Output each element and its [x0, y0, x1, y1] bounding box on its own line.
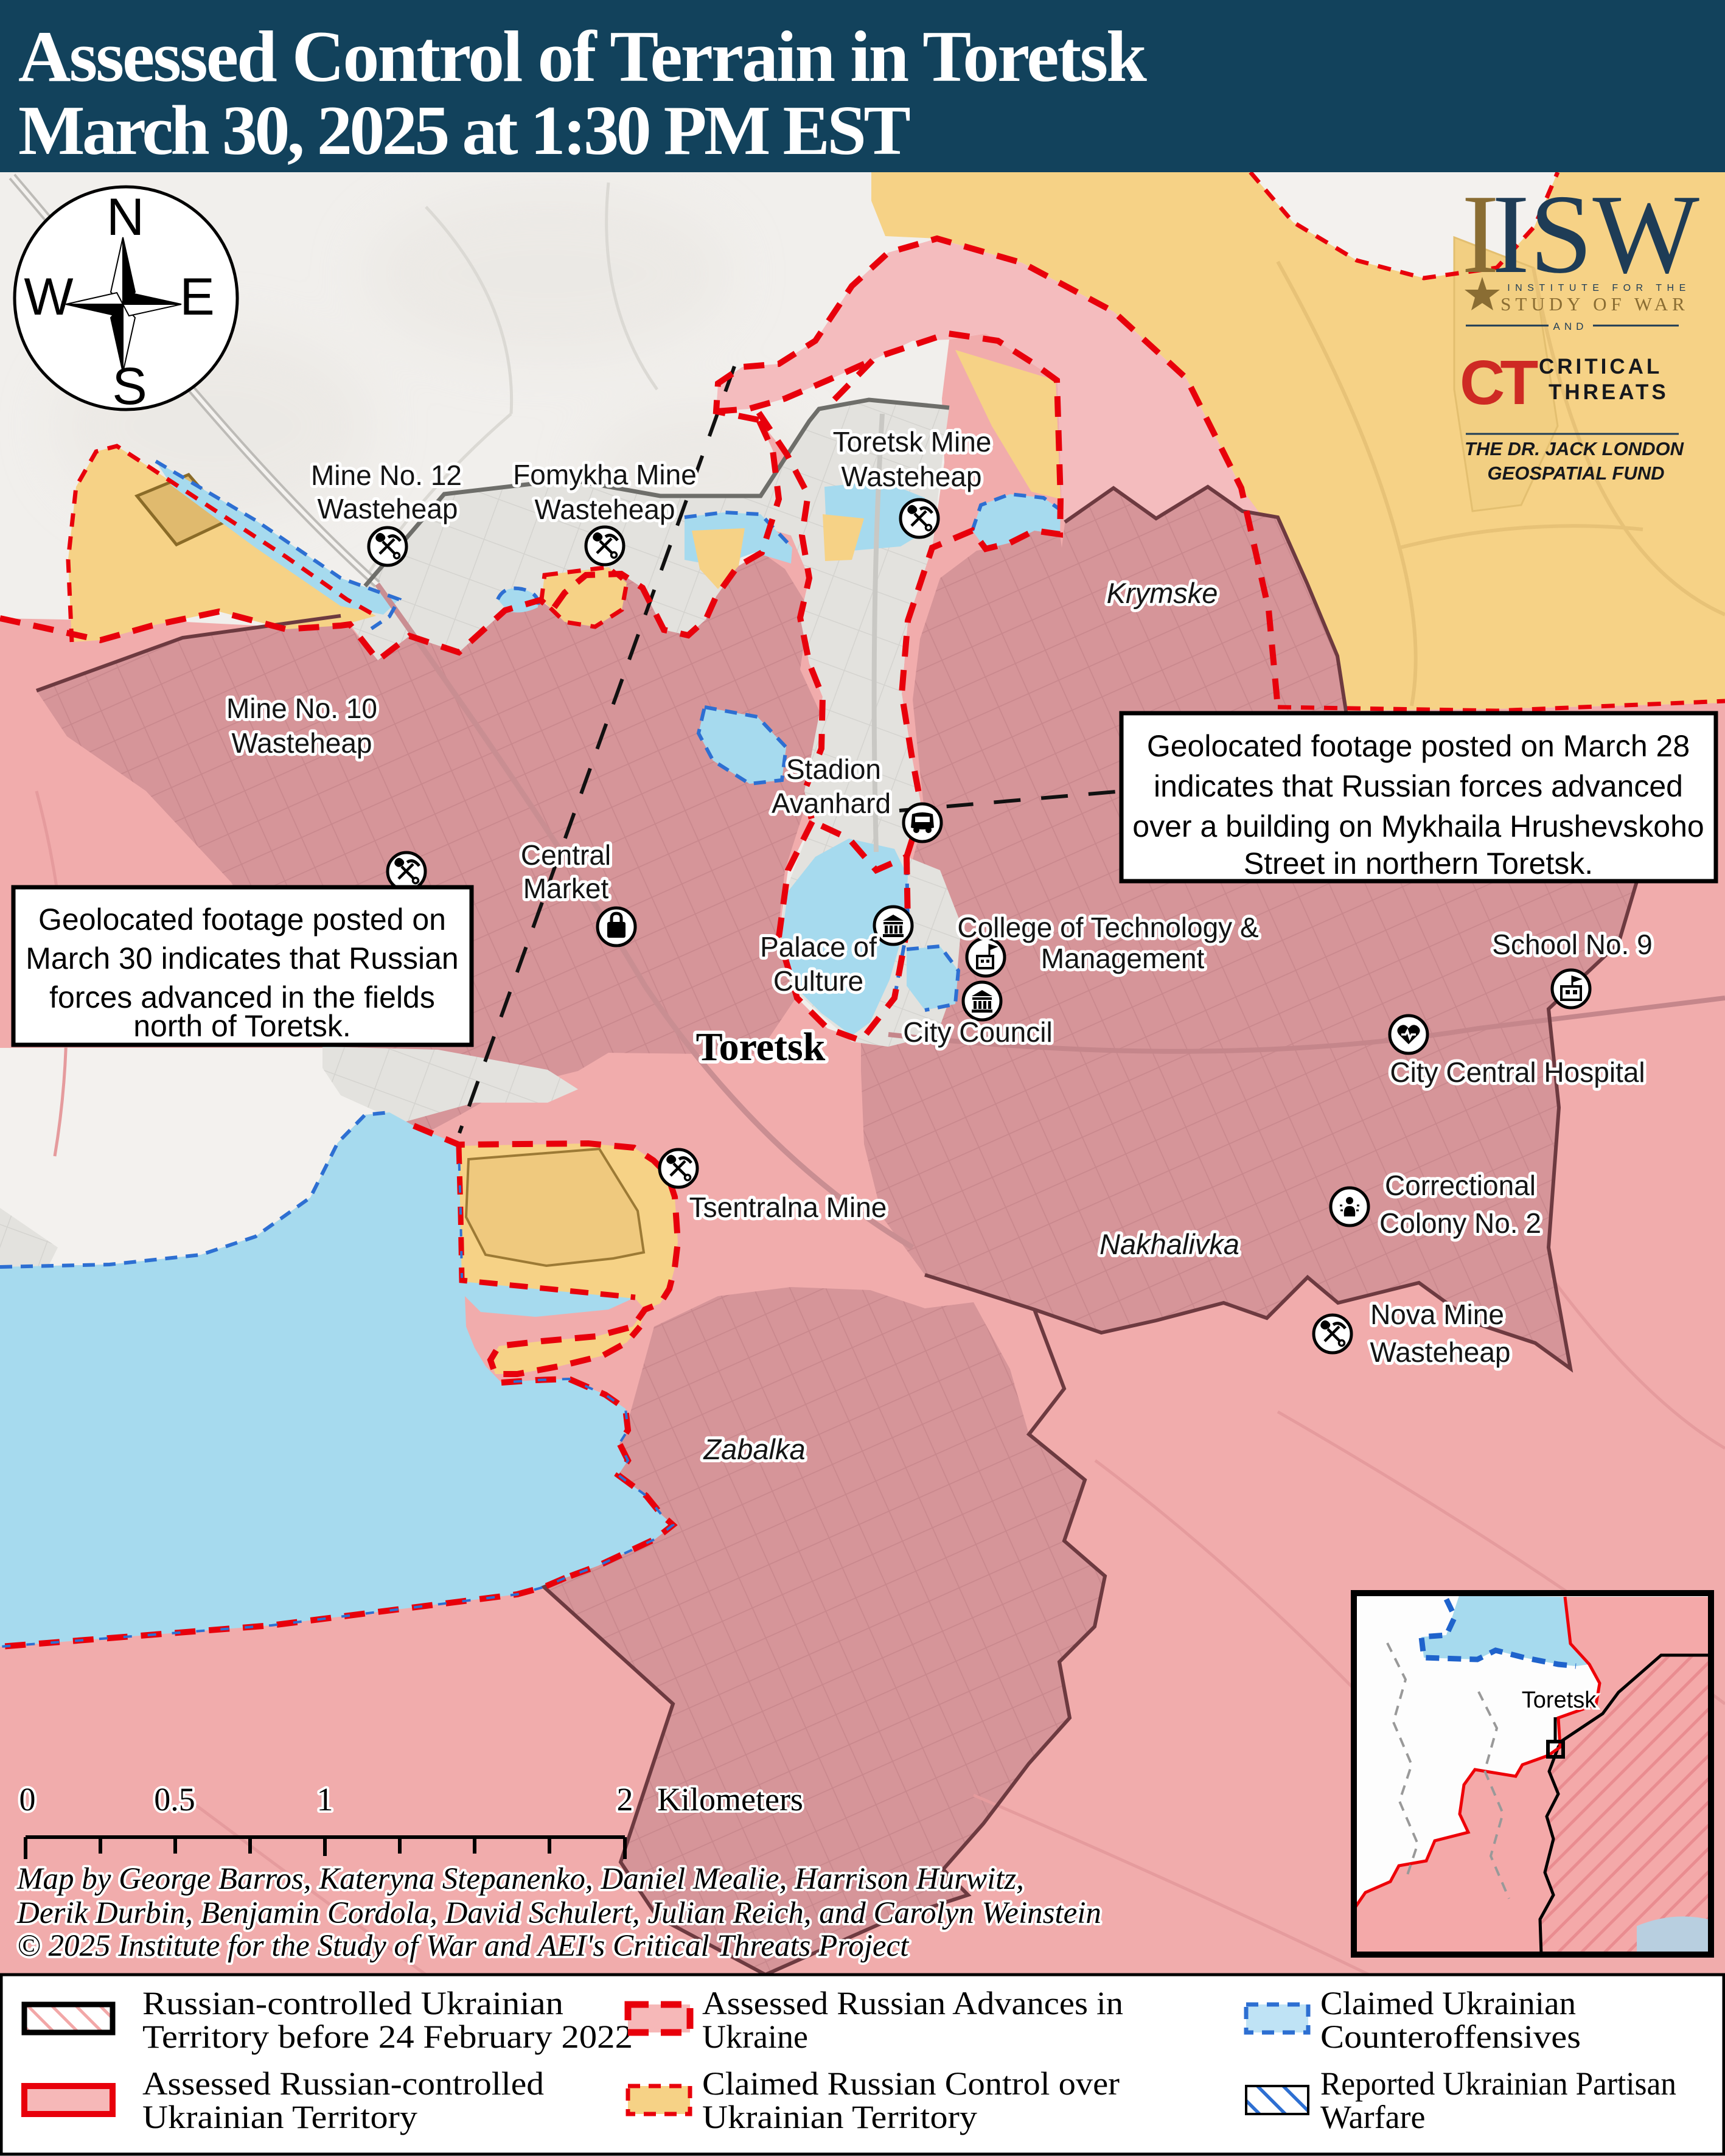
- svg-text:Geolocated footage posted on M: Geolocated footage posted on March 28: [1147, 729, 1690, 763]
- svg-text:City Central Hospital: City Central Hospital: [1390, 1056, 1645, 1088]
- svg-text:March 30 indicates that Russia: March 30 indicates that Russian: [26, 941, 458, 975]
- svg-text:© 2025 Institute for the Study: © 2025 Institute for the Study of War an…: [17, 1929, 910, 1963]
- svg-text:W: W: [24, 268, 73, 326]
- svg-text:Map by George Barros, Kateryna: Map by George Barros, Kateryna Stepanenk…: [16, 1862, 1024, 1896]
- svg-text:Palace of: Palace of: [760, 931, 877, 963]
- svg-text:Wasteheap: Wasteheap: [842, 461, 982, 492]
- svg-text:Claimed Russian Control over: Claimed Russian Control over: [702, 2065, 1120, 2102]
- svg-text:Assessed Control of Terrain in: Assessed Control of Terrain in Toretsk: [18, 16, 1147, 97]
- svg-text:STUDY OF WAR: STUDY OF WAR: [1500, 293, 1689, 315]
- svg-text:ISW: ISW: [1492, 172, 1699, 297]
- svg-text:Culture: Culture: [773, 965, 863, 997]
- svg-text:CT: CT: [1460, 347, 1538, 417]
- svg-text:E: E: [179, 268, 214, 326]
- svg-text:Zabalka: Zabalka: [703, 1433, 805, 1465]
- svg-text:Wasteheap: Wasteheap: [1370, 1336, 1511, 1368]
- svg-text:Management: Management: [1041, 943, 1205, 974]
- svg-text:Street in northern Toretsk.: Street in northern Toretsk.: [1244, 846, 1593, 881]
- svg-text:Warfare: Warfare: [1320, 2099, 1426, 2135]
- svg-text:Tsentralna Mine: Tsentralna Mine: [689, 1191, 887, 1223]
- svg-text:School No. 9: School No. 9: [1492, 929, 1652, 960]
- svg-text:Territory before 24 February 2: Territory before 24 February 2022: [142, 2018, 633, 2055]
- svg-text:Claimed Ukrainian: Claimed Ukrainian: [1320, 1985, 1576, 2022]
- svg-text:THE DR. JACK LONDON: THE DR. JACK LONDON: [1465, 438, 1684, 459]
- svg-text:Reported Ukrainian Partisan: Reported Ukrainian Partisan: [1320, 2065, 1676, 2102]
- svg-text:THREATS: THREATS: [1549, 380, 1669, 404]
- svg-text:1: 1: [317, 1781, 333, 1818]
- svg-text:Wasteheap: Wasteheap: [232, 727, 372, 759]
- svg-text:Assessed Russian-controlled: Assessed Russian-controlled: [142, 2065, 544, 2102]
- svg-text:Derik Durbin, Benjamin Cordola: Derik Durbin, Benjamin Cordola, David Sc…: [16, 1896, 1101, 1930]
- svg-text:Correctional: Correctional: [1385, 1170, 1536, 1201]
- svg-text:Nakhalivka: Nakhalivka: [1099, 1228, 1239, 1260]
- svg-text:north of Toretsk.: north of Toretsk.: [133, 1009, 351, 1043]
- svg-text:INSTITUTE FOR THE: INSTITUTE FOR THE: [1507, 283, 1691, 293]
- svg-text:N: N: [106, 188, 144, 246]
- svg-text:Nova Mine: Nova Mine: [1370, 1299, 1504, 1330]
- svg-text:Central: Central: [521, 839, 611, 871]
- svg-text:Assessed Russian Advances in: Assessed Russian Advances in: [702, 1985, 1123, 2022]
- svg-text:GEOSPATIAL FUND: GEOSPATIAL FUND: [1487, 462, 1664, 484]
- svg-text:Ukrainian Territory: Ukrainian Territory: [702, 2099, 977, 2135]
- svg-text:Ukraine: Ukraine: [702, 2018, 808, 2055]
- svg-text:Stadion: Stadion: [786, 753, 881, 785]
- svg-text:AND: AND: [1553, 321, 1588, 332]
- svg-text:Russian-controlled Ukrainian: Russian-controlled Ukrainian: [142, 1985, 563, 2022]
- svg-text:CRITICAL: CRITICAL: [1539, 355, 1662, 379]
- svg-text:Ukrainian Territory: Ukrainian Territory: [142, 2099, 417, 2135]
- svg-text:Toretsk: Toretsk: [1522, 1687, 1597, 1713]
- svg-text:S: S: [112, 357, 147, 416]
- svg-text:0.5: 0.5: [154, 1781, 195, 1818]
- svg-text:City Council: City Council: [903, 1016, 1052, 1048]
- svg-text:2: 2: [617, 1781, 633, 1818]
- svg-text:Mine No. 10: Mine No. 10: [226, 693, 377, 724]
- svg-text:Colony No. 2: Colony No. 2: [1379, 1207, 1541, 1239]
- svg-text:Fomykha Mine: Fomykha Mine: [513, 459, 697, 490]
- svg-text:College of Technology &: College of Technology &: [957, 912, 1258, 943]
- svg-text:Avanhard: Avanhard: [772, 787, 891, 819]
- svg-text:Geolocated footage posted on: Geolocated footage posted on: [38, 902, 446, 937]
- svg-text:Toretsk: Toretsk: [696, 1025, 826, 1069]
- svg-text:Counteroffensives: Counteroffensives: [1320, 2018, 1581, 2055]
- svg-text:Toretsk Mine: Toretsk Mine: [833, 426, 992, 458]
- svg-text:Mine No. 12: Mine No. 12: [311, 459, 462, 491]
- svg-text:Kilometers: Kilometers: [657, 1781, 803, 1818]
- svg-text:March 30, 2025 at 1:30 PM EST: March 30, 2025 at 1:30 PM EST: [18, 92, 910, 170]
- svg-text:Wasteheap: Wasteheap: [318, 493, 458, 525]
- svg-text:0: 0: [19, 1781, 36, 1818]
- svg-text:indicates that Russian forces: indicates that Russian forces advanced: [1154, 769, 1683, 803]
- svg-text:Krymske: Krymske: [1107, 577, 1218, 609]
- svg-text:Market: Market: [523, 873, 609, 904]
- svg-text:over a building on Mykhaila Hr: over a building on Mykhaila Hrushevskoho: [1132, 809, 1704, 843]
- svg-text:Wasteheap: Wasteheap: [535, 494, 675, 525]
